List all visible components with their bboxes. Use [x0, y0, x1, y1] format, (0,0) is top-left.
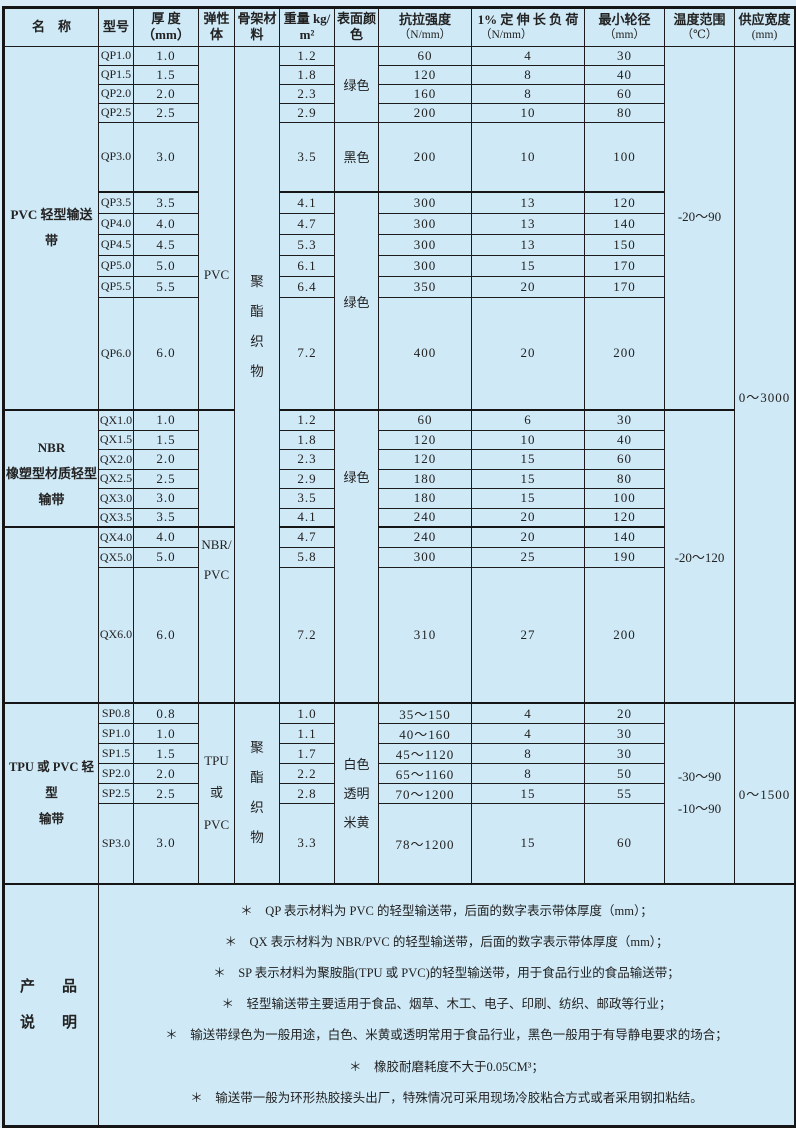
- thickness-cell: 2.5: [134, 784, 199, 804]
- thickness-cell: 5.0: [134, 255, 199, 276]
- thickness-cell: 1.5: [134, 430, 199, 449]
- tensile-strength-cell: 180: [379, 469, 472, 488]
- header-label: 供应宽度: [735, 12, 794, 28]
- header-temp-range: 温度范围（℃）: [665, 8, 735, 47]
- elongation-load-cell: 20: [472, 527, 585, 547]
- header-unit: （N/mm）: [472, 28, 584, 42]
- thickness-cell: 4.0: [134, 213, 199, 234]
- weight-cell: 1.8: [280, 430, 335, 449]
- note-line: ＊ SP 表示材料为聚胺脂(TPU 或 PVC)的轻型输送带，用于食品行业的食品…: [103, 966, 790, 981]
- model-cell: QX4.0: [99, 527, 134, 547]
- elongation-load-cell: 4: [472, 46, 585, 65]
- model-cell: SP2.0: [99, 764, 134, 784]
- header-thickness: 厚 度（mm）: [134, 8, 199, 47]
- min-pulley-diameter-cell: 140: [585, 527, 665, 547]
- elongation-load-cell: 13: [472, 213, 585, 234]
- model-cell: SP0.8: [99, 703, 134, 724]
- elongation-load-cell: 27: [472, 567, 585, 703]
- min-pulley-diameter-cell: 40: [585, 430, 665, 449]
- surface-color-cell: 绿色: [335, 192, 379, 410]
- min-pulley-diameter-cell: 100: [585, 122, 665, 192]
- notes-row: 产 品 说 明 ＊ QP 表示材料为 PVC 的轻型输送带，后面的数字表示带体厚…: [4, 884, 796, 1127]
- weight-cell: 4.1: [280, 508, 335, 527]
- weight-cell: 6.1: [280, 255, 335, 276]
- tensile-strength-cell: 45～1120: [379, 744, 472, 764]
- min-pulley-diameter-cell: 60: [585, 84, 665, 103]
- thickness-cell: 2.0: [134, 84, 199, 103]
- elongation-load-cell: 13: [472, 234, 585, 255]
- weight-cell: 1.0: [280, 703, 335, 724]
- model-cell: QP5.0: [99, 255, 134, 276]
- weight-cell: 7.2: [280, 567, 335, 703]
- thickness-cell: 5.5: [134, 276, 199, 297]
- model-cell: SP2.5: [99, 784, 134, 804]
- min-pulley-diameter-cell: 140: [585, 213, 665, 234]
- elongation-load-cell: 15: [472, 784, 585, 804]
- notes-content: ＊ QP 表示材料为 PVC 的轻型输送带，后面的数字表示带体厚度（mm）； ＊…: [99, 884, 796, 1127]
- header-model: 型号: [99, 8, 134, 47]
- header-unit: (mm): [735, 28, 794, 42]
- thickness-cell: 6.0: [134, 567, 199, 703]
- min-pulley-diameter-cell: 200: [585, 297, 665, 410]
- model-cell: QP2.0: [99, 84, 134, 103]
- weight-cell: 3.3: [280, 804, 335, 884]
- min-pulley-diameter-cell: 190: [585, 547, 665, 567]
- elastomer-cell: PVC: [199, 46, 235, 410]
- tensile-strength-cell: 40～160: [379, 724, 472, 744]
- note-line: ＊ QX 表示材料为 NBR/PVC 的轻型输送带，后面的数字表示带体厚度（mm…: [103, 935, 790, 950]
- elongation-load-cell: 20: [472, 276, 585, 297]
- thickness-cell: 2.5: [134, 469, 199, 488]
- tensile-strength-cell: 200: [379, 103, 472, 122]
- elongation-load-cell: 15: [472, 469, 585, 488]
- temperature-range-cell: -20～120: [665, 410, 735, 703]
- header-supply-width: 供应宽度(mm): [735, 8, 796, 47]
- elongation-load-cell: 8: [472, 744, 585, 764]
- thickness-cell: 2.0: [134, 764, 199, 784]
- thickness-cell: 2.5: [134, 103, 199, 122]
- skeleton-material-cell: 聚 酯 织 物: [235, 703, 280, 884]
- elongation-load-cell: 15: [472, 804, 585, 884]
- min-pulley-diameter-cell: 150: [585, 234, 665, 255]
- supply-width-cell: 0～1500: [735, 703, 796, 884]
- note-line: ＊ 轻型输送带主要适用于食品、烟草、木工、电子、印刷、纺织、邮政等行业；: [103, 997, 790, 1012]
- note-line: ＊ 橡胶耐磨耗度不大于0.05CM³；: [103, 1060, 790, 1075]
- elongation-load-cell: 10: [472, 430, 585, 449]
- min-pulley-diameter-cell: 60: [585, 449, 665, 469]
- min-pulley-diameter-cell: 120: [585, 192, 665, 213]
- skeleton-material-cell: 聚 酯 织 物: [235, 46, 280, 703]
- weight-cell: 3.5: [280, 488, 335, 508]
- min-pulley-diameter-cell: 200: [585, 567, 665, 703]
- elongation-load-cell: 8: [472, 764, 585, 784]
- weight-cell: 2.9: [280, 469, 335, 488]
- model-cell: QP1.0: [99, 46, 134, 65]
- model-cell: QP3.5: [99, 192, 134, 213]
- tensile-strength-cell: 120: [379, 430, 472, 449]
- table-row: NBR 橡塑型材质轻型 输带 QX1.0 1.0 1.2 绿色 60 6 30 …: [4, 410, 796, 430]
- thickness-cell: 3.5: [134, 192, 199, 213]
- temperature-range-cell: -20～90: [665, 46, 735, 410]
- tensile-strength-cell: 300: [379, 192, 472, 213]
- elongation-load-cell: 15: [472, 255, 585, 276]
- header-label: 最小轮径: [585, 12, 664, 28]
- min-pulley-diameter-cell: 80: [585, 469, 665, 488]
- model-cell: QP1.5: [99, 65, 134, 84]
- thickness-cell: 1.5: [134, 65, 199, 84]
- tensile-strength-cell: 300: [379, 213, 472, 234]
- model-cell: QX2.0: [99, 449, 134, 469]
- thickness-cell: 4.5: [134, 234, 199, 255]
- model-cell: QP5.5: [99, 276, 134, 297]
- elongation-load-cell: 4: [472, 724, 585, 744]
- header-label: 厚 度（mm）: [134, 11, 198, 44]
- header-surface-color: 表面颜 色: [335, 8, 379, 47]
- thickness-cell: 3.0: [134, 122, 199, 192]
- header-weight: 重量 kg/ m²: [280, 8, 335, 47]
- header-label: 温度范围: [665, 12, 734, 28]
- model-cell: QX1.5: [99, 430, 134, 449]
- tensile-strength-cell: 65～1160: [379, 764, 472, 784]
- model-cell: SP1.5: [99, 744, 134, 764]
- header-tensile-strength: 抗拉强度（N/mm）: [379, 8, 472, 47]
- header-label: 抗拉强度: [379, 12, 471, 28]
- tensile-strength-cell: 120: [379, 65, 472, 84]
- tensile-strength-cell: 300: [379, 547, 472, 567]
- elongation-load-cell: 13: [472, 192, 585, 213]
- model-cell: QP3.0: [99, 122, 134, 192]
- min-pulley-diameter-cell: 40: [585, 65, 665, 84]
- model-cell: QX3.0: [99, 488, 134, 508]
- min-pulley-diameter-cell: 50: [585, 764, 665, 784]
- weight-cell: 1.1: [280, 724, 335, 744]
- elongation-load-cell: 20: [472, 297, 585, 410]
- min-pulley-diameter-cell: 60: [585, 804, 665, 884]
- thickness-cell: 6.0: [134, 297, 199, 410]
- min-pulley-diameter-cell: 30: [585, 410, 665, 430]
- supply-width-cell: 0～3000: [735, 46, 796, 703]
- elongation-load-cell: 10: [472, 122, 585, 192]
- model-cell: QP4.0: [99, 213, 134, 234]
- elongation-load-cell: 20: [472, 508, 585, 527]
- weight-cell: 2.3: [280, 84, 335, 103]
- header-elongation-load: 1% 定 伸 长 负 荷（N/mm）: [472, 8, 585, 47]
- thickness-cell: 1.0: [134, 724, 199, 744]
- model-cell: QX2.5: [99, 469, 134, 488]
- table-row: PVC 轻型输送带 QP1.0 1.0 PVC 聚 酯 织 物 1.2 绿色 6…: [4, 46, 796, 65]
- tensile-strength-cell: 60: [379, 46, 472, 65]
- thickness-cell: 3.5: [134, 508, 199, 527]
- tensile-strength-cell: 70～1200: [379, 784, 472, 804]
- header-skeleton: 骨架材 料: [235, 8, 280, 47]
- section-name-cell: [4, 527, 99, 703]
- min-pulley-diameter-cell: 20: [585, 703, 665, 724]
- header-label: 1% 定 伸 长 负 荷: [472, 12, 584, 28]
- tensile-strength-cell: 180: [379, 488, 472, 508]
- weight-cell: 5.8: [280, 547, 335, 567]
- min-pulley-diameter-cell: 80: [585, 103, 665, 122]
- min-pulley-diameter-cell: 170: [585, 276, 665, 297]
- temperature-range-cell: -30～90 -10～90: [665, 703, 735, 884]
- header-unit: （N/mm）: [379, 28, 471, 42]
- elastomer-cell: [199, 410, 235, 527]
- elongation-load-cell: 25: [472, 547, 585, 567]
- tensile-strength-cell: 310: [379, 567, 472, 703]
- min-pulley-diameter-cell: 30: [585, 724, 665, 744]
- thickness-cell: 1.0: [134, 46, 199, 65]
- thickness-cell: 3.0: [134, 804, 199, 884]
- elongation-load-cell: 10: [472, 103, 585, 122]
- thickness-cell: 0.8: [134, 703, 199, 724]
- weight-cell: 3.5: [280, 122, 335, 192]
- weight-cell: 2.2: [280, 764, 335, 784]
- model-cell: QP2.5: [99, 103, 134, 122]
- elongation-load-cell: 6: [472, 410, 585, 430]
- note-line: ＊ 输送带绿色为一般用途，白色、米黄或透明常用于食品行业，黑色一般用于有导静电要…: [103, 1028, 790, 1043]
- elastomer-cell: TPU 或 PVC: [199, 703, 235, 884]
- model-cell: SP1.0: [99, 724, 134, 744]
- model-cell: QP6.0: [99, 297, 134, 410]
- table-row: TPU 或 PVC 轻型 输带 SP0.8 0.8 TPU 或 PVC 聚 酯 …: [4, 703, 796, 724]
- thickness-cell: 4.0: [134, 527, 199, 547]
- tensile-strength-cell: 60: [379, 410, 472, 430]
- tensile-strength-cell: 78～1200: [379, 804, 472, 884]
- min-pulley-diameter-cell: 100: [585, 488, 665, 508]
- model-cell: QX6.0: [99, 567, 134, 703]
- header-unit: （mm）: [585, 28, 664, 42]
- weight-cell: 1.2: [280, 410, 335, 430]
- header-elastomer: 弹性 体: [199, 8, 235, 47]
- tensile-strength-cell: 120: [379, 449, 472, 469]
- section-name-cell: TPU 或 PVC 轻型 输带: [4, 703, 99, 884]
- weight-cell: 1.8: [280, 65, 335, 84]
- header-label: 弹性 体: [199, 11, 234, 44]
- tensile-strength-cell: 300: [379, 255, 472, 276]
- weight-cell: 4.7: [280, 527, 335, 547]
- tensile-strength-cell: 240: [379, 527, 472, 547]
- belt-spec-table: 名 称 型号 厚 度（mm） 弹性 体 骨架材 料 重量 kg/ m² 表面颜 …: [2, 6, 796, 1128]
- header-name: 名 称: [4, 8, 99, 47]
- surface-color-cell: 绿色: [335, 46, 379, 122]
- elongation-load-cell: 8: [472, 84, 585, 103]
- header-label: 型号: [99, 19, 133, 35]
- tensile-strength-cell: 35～150: [379, 703, 472, 724]
- tensile-strength-cell: 350: [379, 276, 472, 297]
- min-pulley-diameter-cell: 120: [585, 508, 665, 527]
- min-pulley-diameter-cell: 55: [585, 784, 665, 804]
- header-label: 名 称: [5, 19, 98, 35]
- section-name-cell: NBR 橡塑型材质轻型 输带: [4, 410, 99, 527]
- weight-cell: 6.4: [280, 276, 335, 297]
- elongation-load-cell: 15: [472, 488, 585, 508]
- min-pulley-diameter-cell: 30: [585, 744, 665, 764]
- weight-cell: 5.3: [280, 234, 335, 255]
- tensile-strength-cell: 200: [379, 122, 472, 192]
- tensile-strength-cell: 400: [379, 297, 472, 410]
- weight-cell: 1.2: [280, 46, 335, 65]
- surface-color-cell: 绿色: [335, 410, 379, 703]
- note-line: ＊ QP 表示材料为 PVC 的轻型输送带，后面的数字表示带体厚度（mm）；: [103, 904, 790, 919]
- note-line: ＊ 输送带一般为环形热胶接头出厂，特殊情况可采用现场冷胶粘合方式或者采用钢扣粘结…: [103, 1091, 790, 1106]
- thickness-cell: 5.0: [134, 547, 199, 567]
- model-cell: QP4.5: [99, 234, 134, 255]
- header-row: 名 称 型号 厚 度（mm） 弹性 体 骨架材 料 重量 kg/ m² 表面颜 …: [4, 8, 796, 47]
- tensile-strength-cell: 240: [379, 508, 472, 527]
- elastomer-cell: NBR/ PVC: [199, 527, 235, 703]
- tensile-strength-cell: 300: [379, 234, 472, 255]
- header-min-diameter: 最小轮径（mm）: [585, 8, 665, 47]
- weight-cell: 4.1: [280, 192, 335, 213]
- weight-cell: 1.7: [280, 744, 335, 764]
- elongation-load-cell: 4: [472, 703, 585, 724]
- header-label: 骨架材 料: [235, 11, 279, 44]
- model-cell: QX5.0: [99, 547, 134, 567]
- thickness-cell: 1.0: [134, 410, 199, 430]
- thickness-cell: 3.0: [134, 488, 199, 508]
- tensile-strength-cell: 160: [379, 84, 472, 103]
- header-unit: （℃）: [665, 28, 734, 42]
- section-name-cell: PVC 轻型输送带: [4, 46, 99, 410]
- min-pulley-diameter-cell: 30: [585, 46, 665, 65]
- model-cell: QX1.0: [99, 410, 134, 430]
- weight-cell: 2.9: [280, 103, 335, 122]
- weight-cell: 2.8: [280, 784, 335, 804]
- elongation-load-cell: 8: [472, 65, 585, 84]
- header-label: 重量 kg/ m²: [280, 11, 334, 44]
- notes-title: 产 品 说 明: [4, 884, 99, 1127]
- thickness-cell: 2.0: [134, 449, 199, 469]
- model-cell: SP3.0: [99, 804, 134, 884]
- min-pulley-diameter-cell: 170: [585, 255, 665, 276]
- surface-color-cell: 白色 透明 米黄: [335, 703, 379, 884]
- thickness-cell: 1.5: [134, 744, 199, 764]
- spec-sheet: 名 称 型号 厚 度（mm） 弹性 体 骨架材 料 重量 kg/ m² 表面颜 …: [2, 6, 796, 1128]
- weight-cell: 2.3: [280, 449, 335, 469]
- elongation-load-cell: 15: [472, 449, 585, 469]
- header-label: 表面颜 色: [335, 11, 378, 44]
- model-cell: QX3.5: [99, 508, 134, 527]
- weight-cell: 7.2: [280, 297, 335, 410]
- weight-cell: 4.7: [280, 213, 335, 234]
- surface-color-cell: 黑色: [335, 122, 379, 192]
